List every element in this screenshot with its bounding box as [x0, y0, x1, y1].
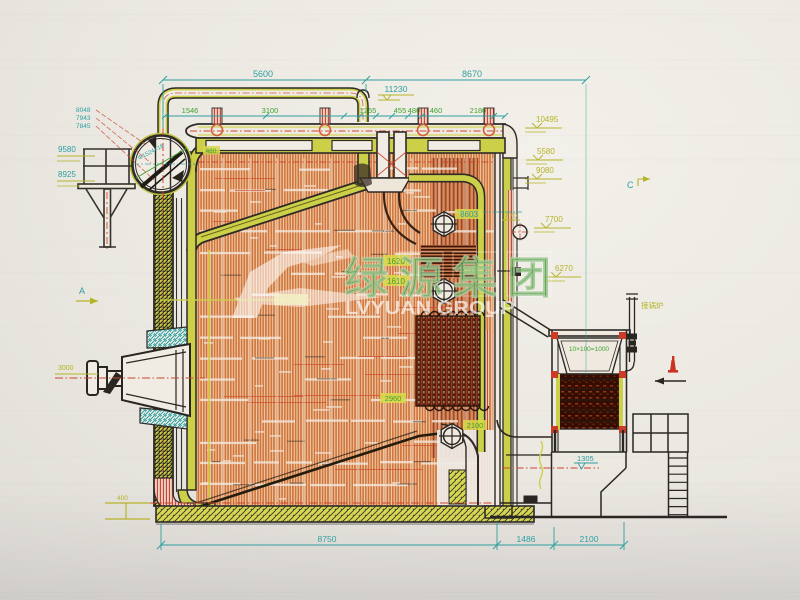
svg-text:770: 770 — [505, 211, 518, 220]
svg-text:9580: 9580 — [58, 145, 76, 154]
svg-text:8670: 8670 — [462, 69, 482, 79]
svg-text:1305: 1305 — [577, 454, 594, 463]
svg-text:10495: 10495 — [536, 115, 559, 124]
svg-text:2100: 2100 — [467, 421, 484, 430]
svg-text:10×100=1000: 10×100=1000 — [569, 346, 610, 353]
svg-text:7943: 7943 — [76, 115, 91, 122]
svg-text:455: 455 — [394, 106, 407, 115]
svg-text:3000: 3000 — [58, 365, 74, 372]
svg-text:2100: 2100 — [580, 534, 599, 544]
svg-text:1486: 1486 — [517, 534, 536, 544]
svg-text:C: C — [627, 180, 634, 190]
svg-text:集: 集 — [452, 254, 497, 303]
svg-text:团: 团 — [507, 254, 551, 303]
svg-text:7700: 7700 — [545, 215, 563, 224]
svg-text:8925: 8925 — [58, 170, 76, 179]
svg-text:绿: 绿 — [344, 254, 389, 303]
svg-text:2180: 2180 — [470, 106, 487, 115]
svg-text:接锅炉: 接锅炉 — [641, 300, 664, 310]
svg-text:A: A — [79, 286, 85, 296]
svg-text:6270: 6270 — [555, 264, 573, 273]
svg-text:1546: 1546 — [182, 106, 199, 115]
svg-text:400: 400 — [117, 495, 128, 502]
svg-text:2960: 2960 — [385, 394, 402, 403]
svg-text:8750: 8750 — [318, 534, 337, 544]
svg-text:5600: 5600 — [253, 69, 273, 79]
svg-text:LVYUAN GROUP: LVYUAN GROUP — [345, 298, 515, 318]
svg-text:5580: 5580 — [537, 147, 555, 156]
svg-text:11230: 11230 — [384, 84, 407, 94]
svg-text:480: 480 — [408, 106, 421, 115]
svg-text:9080: 9080 — [536, 166, 554, 175]
svg-text:1255: 1255 — [360, 106, 377, 115]
svg-text:480: 480 — [206, 148, 217, 155]
svg-text:3100: 3100 — [262, 106, 279, 115]
svg-text:源: 源 — [399, 254, 443, 303]
svg-text:7845: 7845 — [76, 123, 91, 130]
svg-text:460: 460 — [430, 106, 443, 115]
svg-text:8603: 8603 — [460, 210, 478, 219]
svg-text:8048: 8048 — [76, 107, 91, 114]
